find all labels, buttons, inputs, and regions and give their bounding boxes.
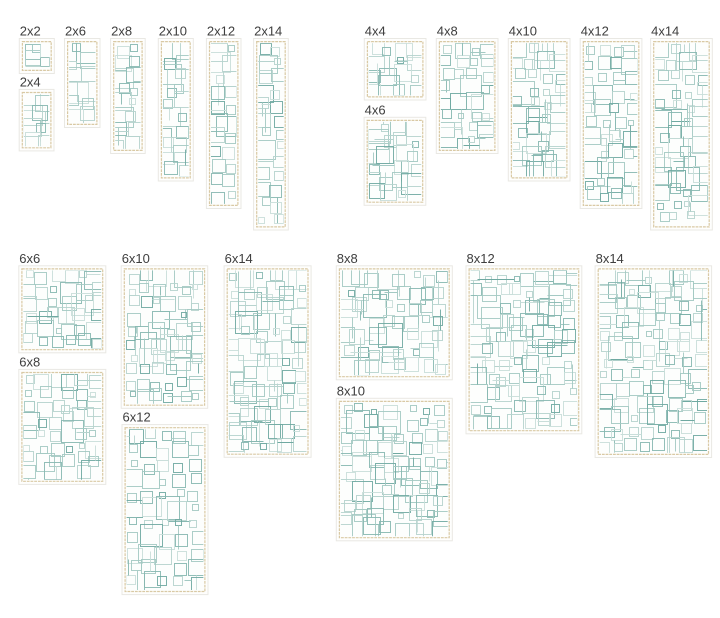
svg-text:2x4: 2x4 — [20, 75, 41, 90]
svg-text:4x12: 4x12 — [581, 24, 609, 39]
svg-text:4x10: 4x10 — [509, 24, 537, 39]
svg-text:6x10: 6x10 — [122, 251, 150, 266]
svg-text:6x6: 6x6 — [19, 251, 40, 266]
svg-text:4x14: 4x14 — [651, 24, 679, 39]
svg-text:8x8: 8x8 — [337, 251, 358, 266]
svg-text:2x12: 2x12 — [207, 24, 235, 39]
svg-text:2x2: 2x2 — [20, 24, 41, 39]
svg-text:2x10: 2x10 — [159, 24, 187, 39]
svg-text:4x8: 4x8 — [437, 24, 458, 39]
svg-text:6x14: 6x14 — [225, 251, 253, 266]
svg-text:8x12: 8x12 — [467, 251, 495, 266]
svg-text:8x10: 8x10 — [337, 383, 365, 398]
svg-text:2x6: 2x6 — [65, 24, 86, 39]
svg-text:6x12: 6x12 — [123, 410, 151, 425]
svg-text:2x8: 2x8 — [111, 24, 132, 39]
svg-text:4x4: 4x4 — [365, 24, 386, 39]
svg-text:4x6: 4x6 — [365, 102, 386, 117]
svg-text:6x8: 6x8 — [19, 355, 40, 370]
svg-text:8x14: 8x14 — [596, 251, 624, 266]
svg-text:2x14: 2x14 — [254, 24, 282, 39]
